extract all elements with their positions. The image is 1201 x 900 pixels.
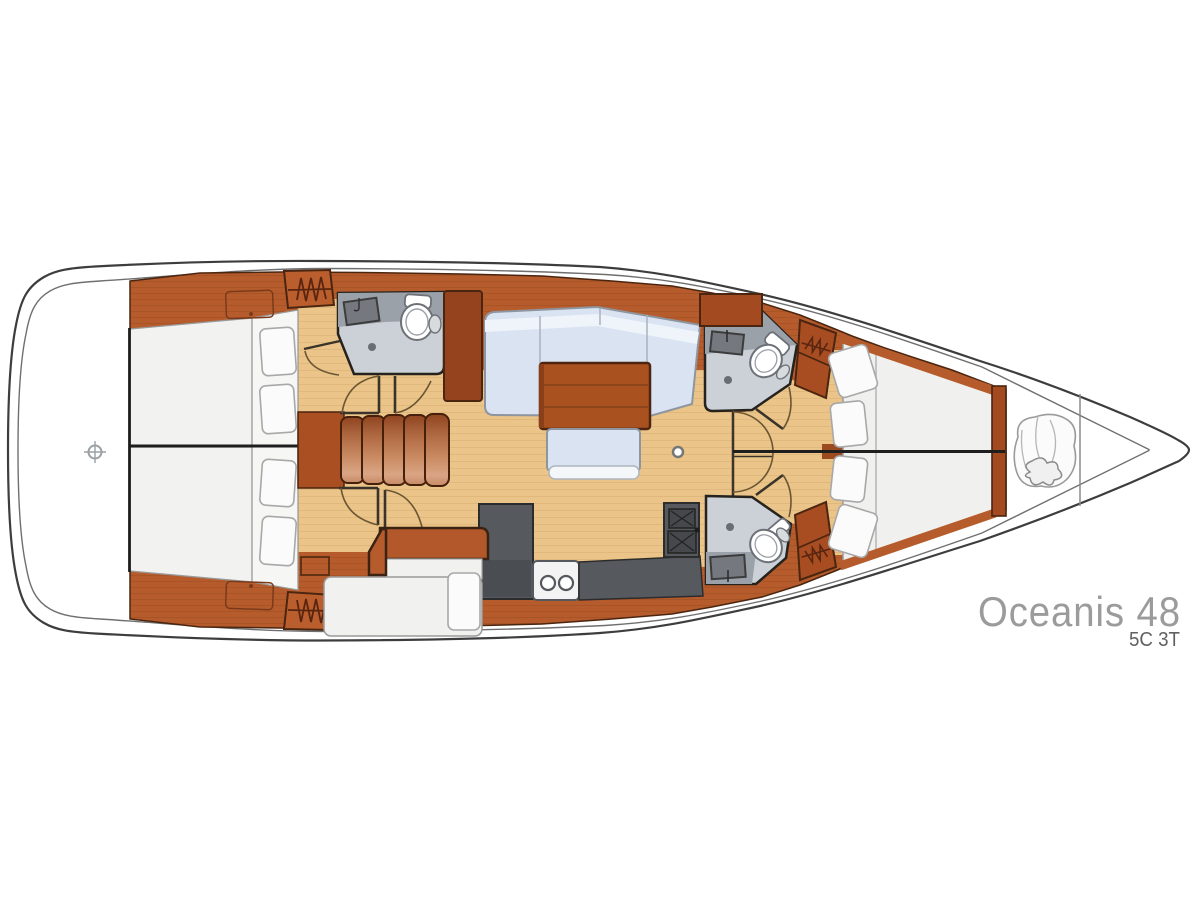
svg-text:Oceanis 48: Oceanis 48 (978, 588, 1181, 635)
svg-text:5C 3T: 5C 3T (1129, 629, 1180, 651)
